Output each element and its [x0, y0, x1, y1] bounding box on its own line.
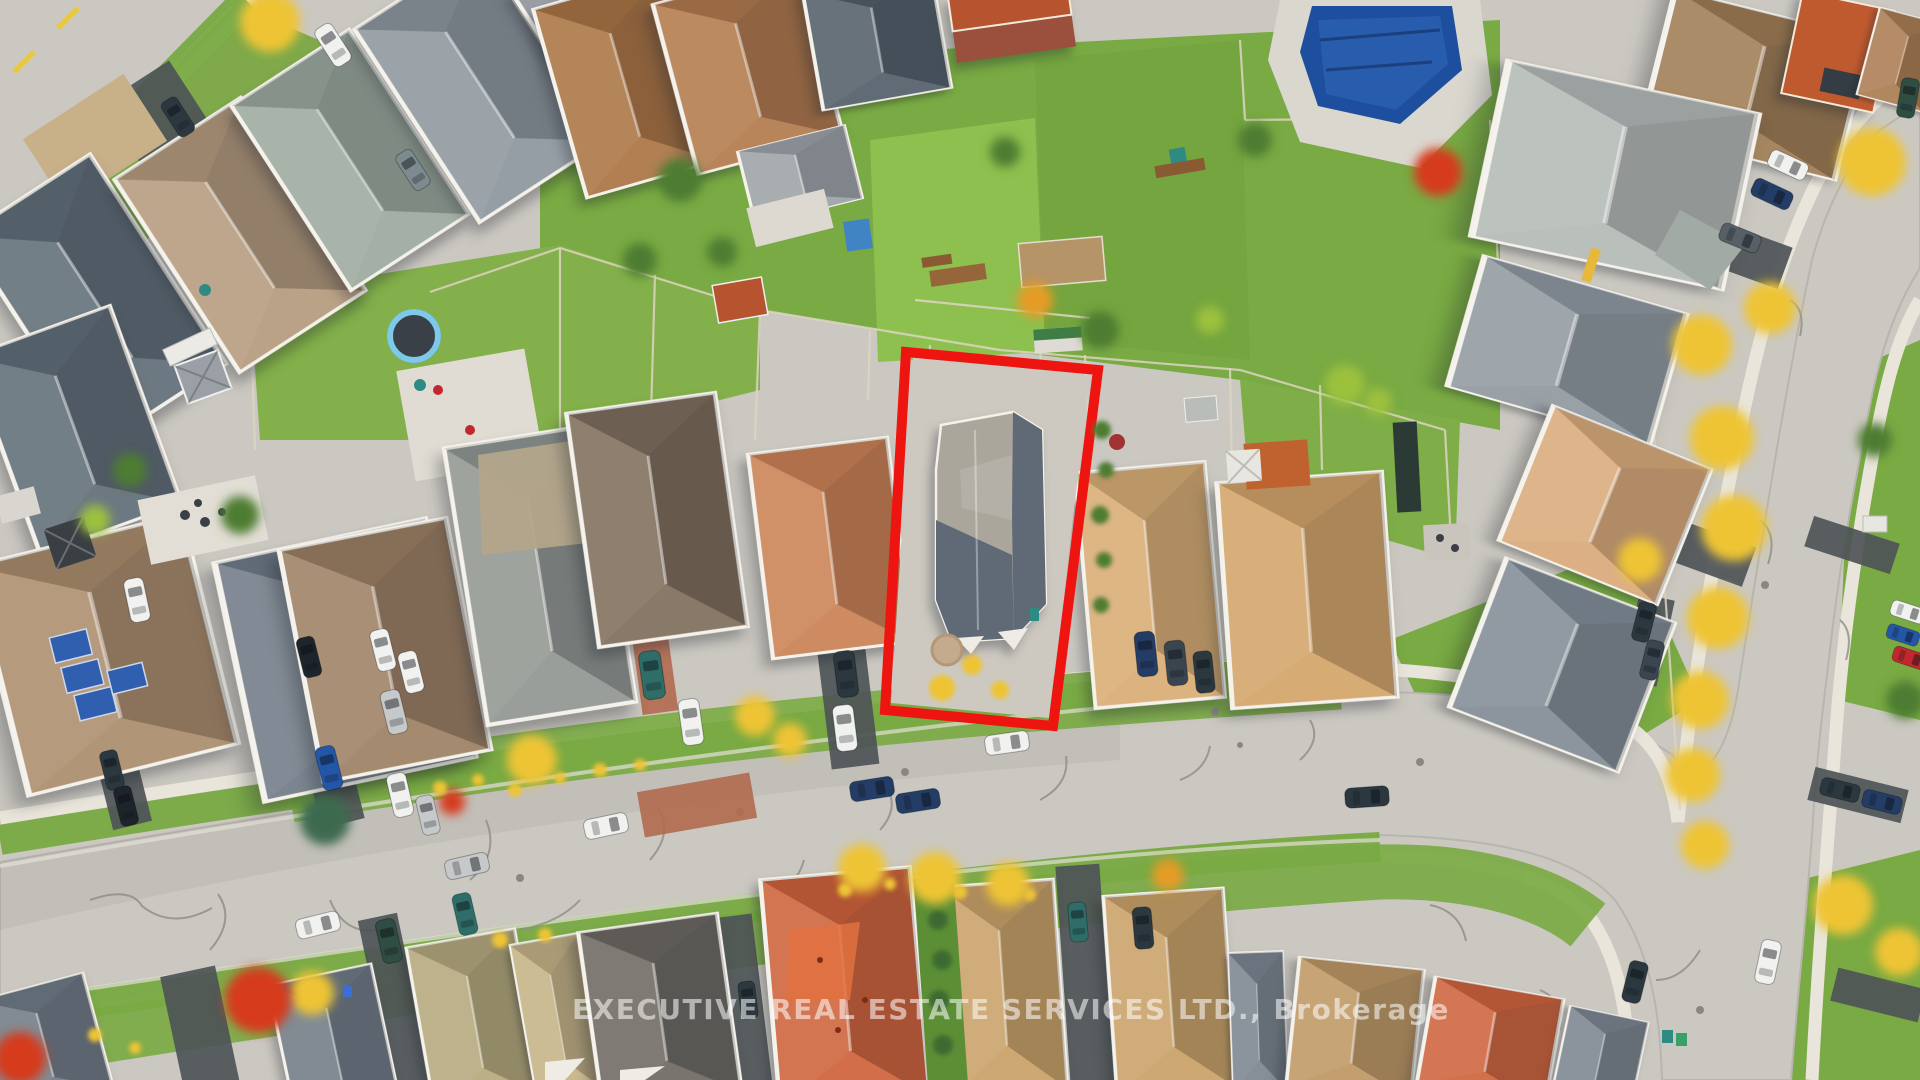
roof-facet: [786, 922, 860, 1004]
patio-furniture: [1436, 534, 1444, 542]
patio: [1423, 523, 1471, 561]
blue-slide: [843, 218, 873, 251]
lime-bush: [1325, 365, 1365, 405]
autumn-tree: [507, 735, 557, 785]
house-roof: [1217, 472, 1397, 709]
brokerage-watermark: EXECUTIVE REAL ESTATE SERVICES LTD., Bro…: [572, 993, 1450, 1026]
car-dark: [1164, 640, 1189, 687]
car-dark-blue: [1134, 631, 1159, 678]
subject-roof-dark-east: [1012, 412, 1046, 638]
shed-tan: [1018, 236, 1106, 287]
autumn-tree: [1744, 282, 1796, 334]
utility-box: [1863, 516, 1887, 532]
patio-umbrella: [1109, 434, 1125, 450]
subject-house: [936, 412, 1046, 654]
trampoline: [387, 309, 441, 363]
autumn-tree: [735, 696, 775, 736]
orange-bush: [1152, 859, 1184, 891]
aerial-scene: [0, 0, 1920, 1080]
autumn-tree: [1666, 748, 1720, 802]
car-teal: [1067, 901, 1088, 942]
autumn-tree: [1618, 538, 1662, 582]
autumn-tree: [1681, 821, 1729, 869]
autumn-tree: [986, 862, 1030, 906]
house-roof: [566, 393, 747, 648]
yard-item: [199, 284, 211, 296]
spruce-tree: [300, 795, 350, 845]
green-tree: [221, 496, 259, 534]
backyard-shed: [1033, 326, 1083, 353]
autumn-tree: [1813, 875, 1873, 935]
orange-bush: [1017, 282, 1053, 318]
green-tree: [1081, 311, 1119, 349]
red-tree: [225, 967, 291, 1033]
red-bush: [1414, 148, 1462, 196]
green-tree: [990, 137, 1020, 167]
house-roof: [1103, 888, 1237, 1080]
lap-pool: [1393, 421, 1422, 512]
green-bin: [1662, 1030, 1673, 1043]
car-dark: [1132, 906, 1155, 949]
green-tree: [707, 237, 737, 267]
patio-furniture: [414, 379, 426, 391]
car-dark: [1192, 650, 1215, 694]
autumn-tree: [290, 971, 334, 1015]
autumn-tree: [1671, 671, 1729, 729]
blue-bin: [343, 986, 352, 997]
green-tree: [658, 158, 702, 202]
green-tree: [1238, 123, 1272, 157]
green-tree: [1858, 423, 1892, 457]
autumn-tree: [1690, 406, 1754, 470]
aerial-photo: EXECUTIVE REAL ESTATE SERVICES LTD., Bro…: [0, 0, 1920, 1080]
green-bin: [1676, 1033, 1687, 1046]
small-shed: [1184, 396, 1218, 423]
house-orange-main: [760, 867, 929, 1080]
lime-bush: [80, 505, 110, 535]
autumn-tree: [1838, 128, 1906, 196]
patio-furniture: [1451, 544, 1459, 552]
autumn-tree: [1672, 315, 1732, 375]
autumn-tree: [1701, 495, 1767, 561]
lime-bush: [1364, 388, 1392, 416]
green-tree: [623, 243, 657, 277]
shed-terracotta: [712, 277, 768, 323]
autumn-tree: [909, 852, 961, 904]
car-dark: [1344, 785, 1389, 808]
autumn-tree: [773, 723, 807, 757]
autumn-tree: [1687, 587, 1749, 649]
recycle-bin: [1030, 608, 1039, 621]
paver-circle: [932, 635, 962, 665]
green-tree: [113, 453, 147, 487]
lime-bush: [1196, 306, 1224, 334]
